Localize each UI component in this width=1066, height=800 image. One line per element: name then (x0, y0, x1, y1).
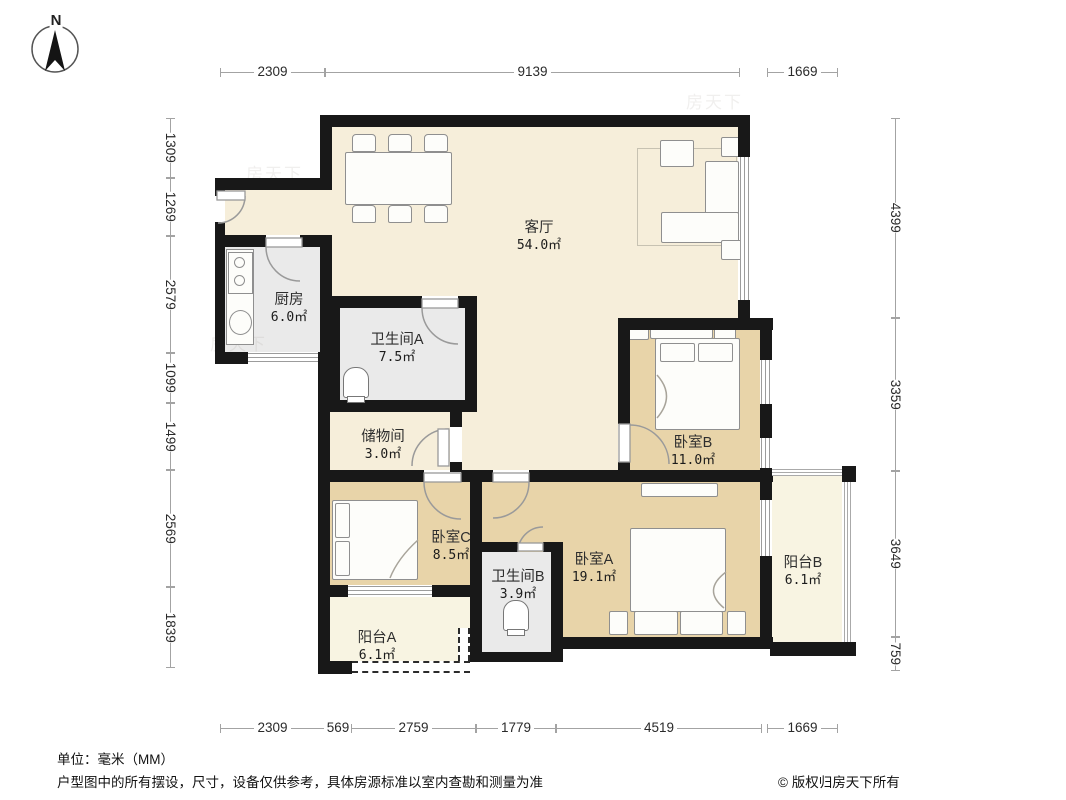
wall (450, 412, 462, 427)
wall (760, 404, 772, 438)
dim-bottom-3: 1779 (476, 719, 556, 737)
stove-burner (234, 275, 245, 286)
room-label-balcony-a: 阳台A 6.1㎡ (358, 629, 397, 665)
room-label-balcony-b: 阳台B 6.1㎡ (784, 554, 823, 590)
wall (318, 585, 348, 597)
dim-bottom-2: 2759 (351, 719, 476, 737)
wall (470, 652, 563, 662)
window (740, 157, 749, 300)
door-leaf (619, 424, 630, 462)
pillow (660, 343, 695, 362)
bed-a (630, 528, 726, 612)
dining-chair (424, 205, 448, 223)
living-room-floor (477, 296, 738, 318)
dim-top-0: 2309 (220, 63, 325, 81)
wall (215, 178, 332, 190)
dining-chair (388, 134, 412, 152)
wall (551, 637, 773, 649)
wall (470, 482, 482, 542)
pillow (335, 541, 350, 576)
wall (738, 115, 750, 157)
dim-right-1: 3359 (886, 318, 904, 471)
balcony-rail (844, 482, 851, 642)
room-label-bedroom-a: 卧室A 19.1㎡ (572, 551, 616, 587)
window (761, 438, 770, 468)
balcony-rail (772, 469, 842, 476)
wall (618, 462, 630, 470)
window (248, 353, 318, 362)
dim-left-0: 1309 (161, 118, 179, 178)
wall (215, 188, 225, 196)
side-table (721, 240, 742, 260)
room-label-bath-b: 卫生间B 3.9㎡ (491, 568, 544, 604)
entry-floor (225, 190, 332, 235)
room-label-storage: 储物间 3.0㎡ (361, 428, 405, 464)
wall (470, 542, 482, 662)
room-label-kitchen: 厨房 6.0㎡ (271, 291, 307, 327)
wall (770, 642, 856, 656)
wall (318, 470, 424, 482)
wall (432, 585, 470, 597)
wall (842, 466, 856, 482)
copyright: © 版权归房天下所有 (778, 771, 900, 791)
dresser (641, 483, 718, 497)
toilet (503, 600, 529, 631)
dim-left-4: 1499 (161, 403, 179, 470)
stove-burner (234, 257, 245, 268)
dining-table (345, 152, 452, 205)
wall (328, 296, 422, 308)
room-label-bath-a: 卫生间A 7.5㎡ (370, 331, 423, 367)
sofa-section (661, 212, 739, 243)
door-leaf (424, 473, 461, 482)
wall (618, 318, 630, 424)
wall (465, 296, 477, 412)
watermark: 房天下 (686, 88, 743, 113)
dim-left-6: 1839 (161, 587, 179, 668)
dim-bottom-4: 4519 (556, 719, 762, 737)
wall (215, 352, 248, 364)
dining-chair (388, 205, 412, 223)
wall (215, 247, 225, 364)
dining-chair (352, 205, 376, 223)
wall (760, 468, 772, 482)
door-leaf (493, 473, 529, 482)
wall (618, 318, 773, 330)
wall (760, 482, 772, 500)
hallway-floor (477, 318, 618, 470)
window (761, 360, 770, 404)
room-label-bedroom-c: 卧室C 8.5㎡ (431, 529, 470, 565)
toilet-base (507, 629, 525, 636)
wall (470, 542, 518, 552)
dim-left-1: 1269 (161, 178, 179, 236)
dim-left-2: 2579 (161, 236, 179, 353)
dim-bottom-0: 2309 (220, 719, 325, 737)
wall (738, 300, 750, 318)
dim-right-0: 4399 (886, 118, 904, 318)
dim-top-1: 9139 (325, 63, 740, 81)
door-leaf (266, 238, 302, 247)
dim-right-2: 3649 (886, 471, 904, 637)
dim-bottom-5: 1669 (767, 719, 838, 737)
wall (320, 115, 750, 127)
pillow (698, 343, 733, 362)
pillow (335, 503, 350, 538)
pillow (727, 611, 746, 635)
dim-top-2: 1669 (767, 63, 838, 81)
window (348, 586, 432, 595)
floorplan: 房天下 房天下 房天下 N (0, 0, 1066, 800)
balcony-door-window (761, 500, 770, 556)
wall (318, 661, 352, 674)
dim-left-3: 1099 (161, 353, 179, 403)
wall (760, 330, 772, 360)
wall (551, 542, 563, 662)
dim-bottom-1: 569 (325, 719, 351, 737)
door-leaf (422, 299, 458, 308)
dining-chair (424, 134, 448, 152)
dim-left-5: 2569 (161, 470, 179, 587)
dining-chair (352, 134, 376, 152)
disclaimer: 户型图中的所有摆设，尺寸，设备仅供参考，具体房源标准以室内查勘和测量为准 (57, 771, 543, 791)
compass-north-label: N (50, 12, 63, 29)
wall (760, 556, 772, 637)
wall (529, 470, 773, 482)
hallway-floor (462, 412, 477, 470)
balcony-a-floor (330, 597, 470, 661)
pillow (680, 611, 723, 635)
room-label-living: 客厅 54.0㎡ (517, 219, 561, 255)
wall (300, 235, 332, 247)
compass: N (26, 10, 86, 82)
unit-note: 单位：毫米（MM） (57, 748, 174, 768)
room-label-bedroom-b: 卧室B 11.0㎡ (671, 434, 715, 470)
toilet-base (347, 396, 365, 403)
wall (461, 470, 493, 482)
balcony-open-edge (458, 628, 470, 661)
dim-right-3: 759 (886, 637, 904, 671)
armchair (660, 140, 694, 167)
wall (328, 300, 340, 412)
toilet (343, 367, 369, 398)
pillow (634, 611, 678, 635)
pillow (609, 611, 628, 635)
kitchen-sink (229, 310, 252, 335)
wall (215, 235, 266, 247)
